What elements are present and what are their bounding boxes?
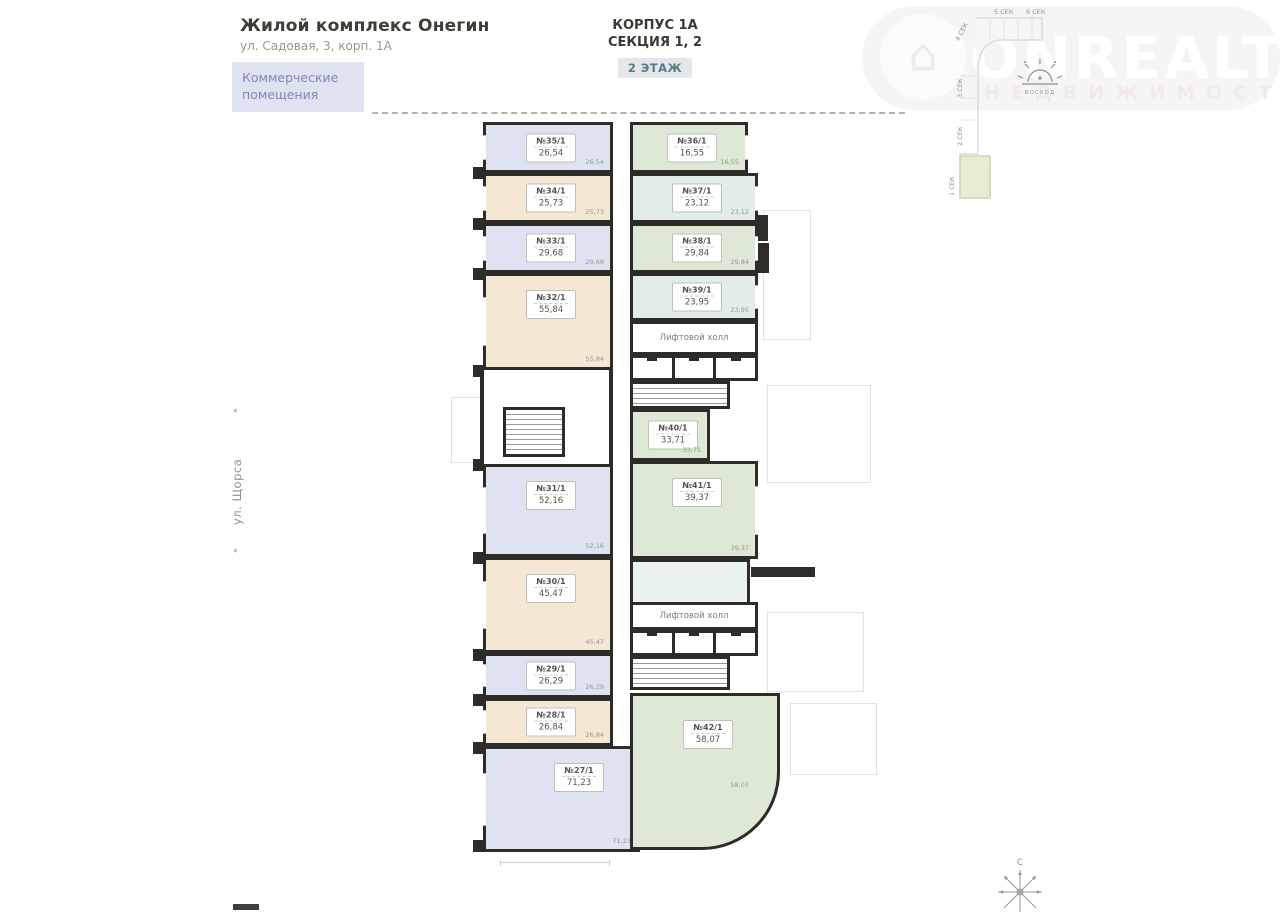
street-marker-top: * bbox=[233, 408, 238, 418]
wall-pilaster bbox=[473, 840, 483, 852]
lift-hall-2: Лифтовой холл bbox=[630, 602, 758, 630]
apartment-r37[interactable]: №37/123,1223,12 bbox=[630, 173, 758, 223]
wall-pilaster bbox=[473, 742, 483, 754]
apartment-area: 23,95 bbox=[680, 297, 714, 308]
street-label: ул. Щорса bbox=[230, 459, 244, 525]
corner-area-annotation: 23,95 bbox=[730, 306, 749, 314]
apartment-number: №34/1 bbox=[534, 187, 568, 198]
lift-hall-2-label: Лифтовой холл bbox=[660, 611, 729, 621]
minimap-section-2: 2 СЕК bbox=[956, 127, 964, 146]
apartment-label[interactable]: №31/152,16 bbox=[526, 481, 576, 510]
staircase-left-wing bbox=[503, 407, 565, 457]
minimap-section-5: 5 СЕК bbox=[994, 8, 1013, 16]
minimap-section-6: 6 СЕК bbox=[1026, 8, 1045, 16]
window bbox=[483, 135, 486, 161]
apartment-area: 26,84 bbox=[534, 722, 568, 733]
corner-area-annotation: 55,84 bbox=[585, 355, 604, 363]
apartment-r32[interactable]: №32/155,8455,84 bbox=[483, 273, 613, 370]
apartment-r28[interactable]: №28/126,8426,84 bbox=[483, 698, 613, 746]
staircase-1 bbox=[630, 381, 730, 409]
apartment-r41[interactable]: №41/139,3739,37 bbox=[630, 461, 758, 559]
apartment-area: 33,71 bbox=[656, 435, 690, 446]
apartment-label[interactable]: №30/145,47 bbox=[526, 574, 576, 603]
window bbox=[483, 710, 486, 734]
apartment-r30[interactable]: №30/145,4745,47 bbox=[483, 557, 613, 653]
address-subtitle: ул. Садовая, 3, корп. 1А bbox=[240, 39, 490, 53]
apartment-number: №30/1 bbox=[534, 577, 568, 588]
corner-area-annotation: 25,73 bbox=[585, 208, 604, 216]
apartment-label[interactable]: №37/123,12 bbox=[672, 184, 722, 213]
header-block: Жилой комплекс Онегин ул. Садовая, 3, ко… bbox=[240, 16, 490, 53]
apartment-number: №31/1 bbox=[534, 484, 568, 495]
wall-pilaster bbox=[473, 459, 483, 471]
corner-area-annotation: 58,07 bbox=[730, 781, 749, 789]
apartment-r31[interactable]: №31/152,1652,16 bbox=[483, 464, 613, 557]
window bbox=[755, 186, 758, 211]
window bbox=[483, 186, 486, 211]
corner-area-annotation: 71,23 bbox=[612, 837, 631, 845]
lift-hall-1: Лифтовой холл bbox=[630, 321, 758, 355]
corner-area-annotation: 52,16 bbox=[585, 542, 604, 550]
window bbox=[483, 581, 486, 629]
apartment-number: №42/1 bbox=[691, 723, 725, 734]
corner-area-annotation: 33,71 bbox=[682, 446, 701, 454]
apartment-number: №37/1 bbox=[680, 187, 714, 198]
apartment-number: №27/1 bbox=[562, 766, 596, 777]
cropped-edge-artifact bbox=[233, 904, 259, 910]
window bbox=[483, 487, 486, 534]
apartment-r40[interactable]: №40/133,7133,71 bbox=[630, 409, 710, 461]
sunrise-label: ВОСХОД bbox=[1012, 90, 1068, 96]
elevator-shafts-2 bbox=[630, 630, 758, 656]
apartment-area: 71,23 bbox=[562, 777, 596, 788]
wall-pilaster bbox=[473, 649, 483, 661]
compass-north-label: С bbox=[988, 858, 1052, 868]
corner-area-annotation: 26,84 bbox=[585, 731, 604, 739]
building-minimap: 4 СЕК 5 СЕК 6 СЕК 3 СЕК 2 СЕК 1 СЕК bbox=[938, 6, 1056, 204]
lift-hall-1-label: Лифтовой холл bbox=[660, 333, 729, 343]
apartment-label[interactable]: №33/129,68 bbox=[526, 234, 576, 263]
compass-rose: С bbox=[988, 858, 1052, 918]
apartment-label[interactable]: №38/129,84 bbox=[672, 234, 722, 263]
apartment-area: 39,37 bbox=[680, 492, 714, 503]
apartment-number: №28/1 bbox=[534, 711, 568, 722]
sunrise-indicator: ВОСХОД bbox=[1012, 56, 1068, 104]
window bbox=[483, 773, 486, 826]
apartment-r29[interactable]: №29/126,2926,29 bbox=[483, 653, 613, 698]
wall-pilaster bbox=[473, 268, 483, 280]
corner-area-annotation: 16,55 bbox=[720, 158, 739, 166]
apartment-r33[interactable]: №33/129,6829,68 bbox=[483, 223, 613, 273]
apartment-label[interactable]: №41/139,37 bbox=[672, 478, 722, 507]
minimap-section-3: 3 СЕК bbox=[956, 79, 964, 98]
page-title: Жилой комплекс Онегин bbox=[240, 16, 490, 36]
apartment-r35[interactable]: №35/126,5426,54 bbox=[483, 122, 613, 173]
brand-watermark: ⌂ ONREALT НЕДВИЖИМОСТЬ bbox=[862, 6, 1280, 110]
apartment-label[interactable]: №27/171,23 bbox=[554, 763, 604, 792]
window bbox=[745, 135, 748, 161]
apartment-label[interactable]: №36/116,55 bbox=[667, 133, 717, 162]
corridor-area bbox=[630, 559, 750, 605]
apartment-area: 29,84 bbox=[680, 248, 714, 259]
window bbox=[755, 236, 758, 261]
apartment-area: 26,29 bbox=[534, 675, 568, 686]
wall-segment bbox=[751, 567, 815, 577]
window bbox=[755, 486, 758, 535]
building-section-block: КОРПУС 1А СЕКЦИЯ 1, 2 2 ЭТАЖ bbox=[585, 18, 725, 78]
apartment-number: №35/1 bbox=[534, 136, 568, 147]
building-label: КОРПУС 1А bbox=[585, 18, 725, 35]
wall-segment bbox=[609, 370, 613, 467]
apartment-number: №39/1 bbox=[680, 286, 714, 297]
corner-area-annotation: 29,68 bbox=[585, 258, 604, 266]
corner-area-annotation: 45,47 bbox=[585, 638, 604, 646]
apartment-area: 23,12 bbox=[680, 198, 714, 209]
apartment-number: №36/1 bbox=[675, 136, 709, 147]
sun-icon bbox=[1016, 56, 1064, 88]
commercial-badge: Коммерческие помещения bbox=[232, 62, 364, 112]
boundary-dashed-line bbox=[372, 112, 905, 114]
corner-area-annotation: 26,54 bbox=[585, 158, 604, 166]
apartment-number: №29/1 bbox=[534, 664, 568, 675]
apartment-label[interactable]: №28/126,84 bbox=[526, 708, 576, 737]
apartment-label[interactable]: №42/158,07 bbox=[683, 720, 733, 749]
apartment-label[interactable]: №39/123,95 bbox=[672, 283, 722, 312]
street-marker-bottom: * bbox=[233, 548, 238, 558]
section-label: СЕКЦИЯ 1, 2 bbox=[585, 35, 725, 52]
window bbox=[483, 664, 486, 687]
compass-icon bbox=[992, 868, 1048, 914]
balcony-outline bbox=[763, 210, 811, 340]
balcony-outline bbox=[451, 397, 481, 463]
apartment-label[interactable]: №32/155,84 bbox=[526, 290, 576, 319]
wall-pilaster bbox=[473, 218, 483, 230]
apartment-area: 58,07 bbox=[691, 734, 725, 745]
apartment-area: 26,54 bbox=[534, 147, 568, 158]
apartment-area: 52,16 bbox=[534, 495, 568, 506]
minimap-section-1: 1 СЕК bbox=[948, 177, 956, 196]
apartment-number: №32/1 bbox=[534, 293, 568, 304]
floor-badge: 2 ЭТАЖ bbox=[618, 58, 692, 78]
wall-pilaster bbox=[473, 552, 483, 564]
elevator-shafts-1 bbox=[630, 355, 758, 381]
corner-area-annotation: 26,29 bbox=[585, 683, 604, 691]
wall-pilaster bbox=[473, 167, 483, 179]
apartment-number: №38/1 bbox=[680, 237, 714, 248]
apartment-area: 55,84 bbox=[534, 304, 568, 315]
wall-segment bbox=[480, 370, 484, 467]
dimension-line bbox=[500, 862, 610, 863]
window bbox=[483, 297, 486, 346]
apartment-r39[interactable]: №39/123,9523,95 bbox=[630, 273, 758, 321]
wall-pilaster bbox=[473, 365, 483, 377]
apartment-number: №40/1 bbox=[656, 424, 690, 435]
window bbox=[755, 285, 758, 309]
apartment-r36[interactable]: №36/116,5516,55 bbox=[630, 122, 748, 173]
wall-segment bbox=[758, 215, 768, 241]
apartment-r38[interactable]: №38/129,8429,84 bbox=[630, 223, 758, 273]
apartment-label[interactable]: №35/126,54 bbox=[526, 133, 576, 162]
floor-plan: Лифтовой холл Лифтовой холл 2,765,162,40… bbox=[455, 115, 885, 865]
apartment-label[interactable]: №29/126,29 bbox=[526, 661, 576, 690]
corner-area-annotation: 39,37 bbox=[730, 544, 749, 552]
wall-pilaster bbox=[473, 694, 483, 706]
apartment-area: 25,73 bbox=[534, 198, 568, 209]
apartment-label[interactable]: №34/125,73 bbox=[526, 184, 576, 213]
balcony-outline bbox=[767, 385, 871, 483]
balcony-outline bbox=[767, 612, 864, 692]
balcony-outline bbox=[790, 703, 877, 775]
corner-area-annotation: 29,84 bbox=[730, 258, 749, 266]
apartment-area: 45,47 bbox=[534, 588, 568, 599]
apartment-number: №41/1 bbox=[680, 481, 714, 492]
apartment-r42[interactable]: №42/158,0758,07 bbox=[630, 693, 780, 850]
staircase-2 bbox=[630, 656, 730, 690]
window bbox=[483, 236, 486, 261]
apartment-area: 16,55 bbox=[675, 147, 709, 158]
apartment-r27[interactable]: №27/171,2371,23 bbox=[483, 746, 640, 852]
corner-area-annotation: 23,12 bbox=[730, 208, 749, 216]
apartment-r34[interactable]: №34/125,7325,73 bbox=[483, 173, 613, 223]
apartment-number: №33/1 bbox=[534, 237, 568, 248]
apartment-area: 29,68 bbox=[534, 248, 568, 259]
